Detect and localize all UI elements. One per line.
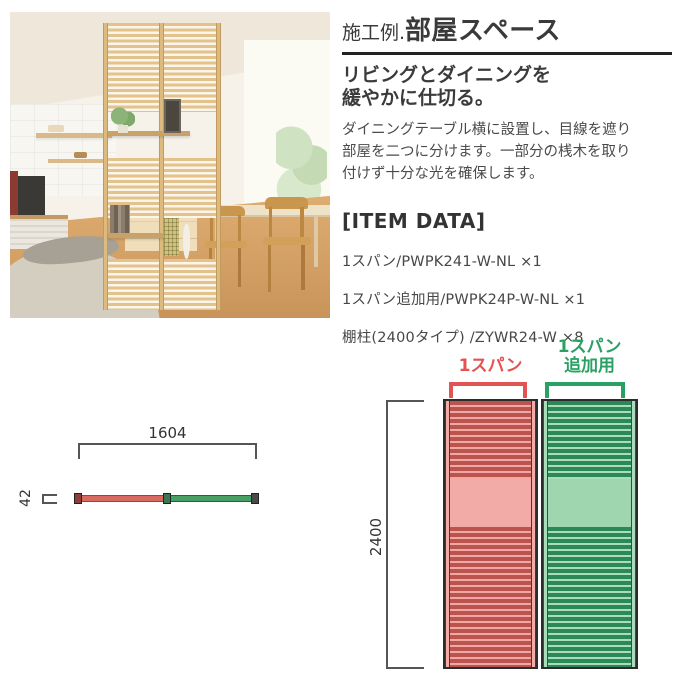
width-dimension-line	[78, 443, 257, 459]
title-underline	[342, 52, 672, 55]
post-marker	[163, 493, 171, 504]
window-plant	[276, 122, 327, 208]
product-example-page: 施工例.部屋スペース リビングとダイニングを 緩やかに仕切る。 ダイニングテーブ…	[0, 0, 680, 680]
hanging-basket	[164, 218, 178, 255]
title-main: 部屋スペース	[405, 16, 561, 46]
depth-dimension-label: 42	[18, 478, 34, 518]
page-title: 施工例.部屋スペース	[342, 16, 672, 48]
panel-post	[631, 401, 636, 667]
height-dimension-line	[386, 400, 424, 669]
post-marker	[74, 493, 82, 504]
item-line-span1: 1スパン/PWPK241-W-NL ×1	[342, 250, 672, 271]
slat-section	[548, 527, 631, 667]
span1-panel	[443, 399, 538, 669]
room-photo	[10, 12, 330, 318]
description-line: ダイニングテーブル横に設置し、目線を遮り	[342, 122, 631, 138]
wall-shelf	[36, 133, 113, 138]
subtitle: リビングとダイニングを 緩やかに仕切る。	[342, 64, 672, 110]
display-frame	[164, 99, 181, 134]
description-line: 部屋を二つに分けます。一部分の桟木を取り	[342, 144, 631, 160]
partition-shelf	[108, 233, 173, 239]
description-line: 付けず十分な光を確保します。	[342, 166, 544, 182]
slat-section	[548, 401, 631, 479]
title-prefix: 施工例.	[342, 22, 405, 44]
span2-label: 1スパン 追加用	[541, 338, 638, 376]
dining-chair	[263, 197, 311, 292]
slat-partition	[103, 23, 221, 311]
slat-section	[450, 527, 531, 667]
span2-panel	[541, 399, 638, 669]
height-dimension-label: 2400	[367, 507, 385, 567]
depth-dimension-bracket	[42, 494, 57, 504]
tv	[18, 176, 45, 216]
span1-top-view-bar	[80, 495, 166, 502]
plant-pot	[118, 125, 127, 134]
partition-post	[103, 23, 108, 311]
panel-post	[531, 401, 536, 667]
books	[110, 205, 130, 232]
description: ダイニングテーブル横に設置し、目線を遮り 部屋を二つに分けます。一部分の桟木を取…	[342, 119, 672, 185]
span2-top-view-bar	[166, 495, 254, 502]
open-section	[450, 479, 531, 527]
info-column: 施工例.部屋スペース リビングとダイニングを 緩やかに仕切る。 ダイニングテーブ…	[342, 16, 672, 347]
item-data-heading: [ITEM DATA]	[342, 209, 672, 233]
subtitle-line2: 緩やかに仕切る。	[342, 87, 494, 109]
hanging-duster	[183, 224, 190, 259]
table-leg	[314, 215, 318, 267]
open-section	[548, 479, 631, 527]
subtitle-line1: リビングとダイニングを	[342, 64, 551, 86]
span1-label: 1スパン	[443, 357, 538, 376]
slat-section	[450, 401, 531, 479]
partition-post	[159, 23, 164, 311]
partition-post	[216, 23, 221, 311]
item-line-span2: 1スパン追加用/PWPK24P-W-NL ×1	[342, 288, 672, 309]
post-marker	[251, 493, 259, 504]
shelf-item	[48, 125, 64, 133]
shelf-item	[74, 152, 87, 159]
span1-bracket	[449, 382, 527, 398]
width-dimension-label: 1604	[78, 424, 257, 442]
span2-bracket	[545, 382, 625, 398]
